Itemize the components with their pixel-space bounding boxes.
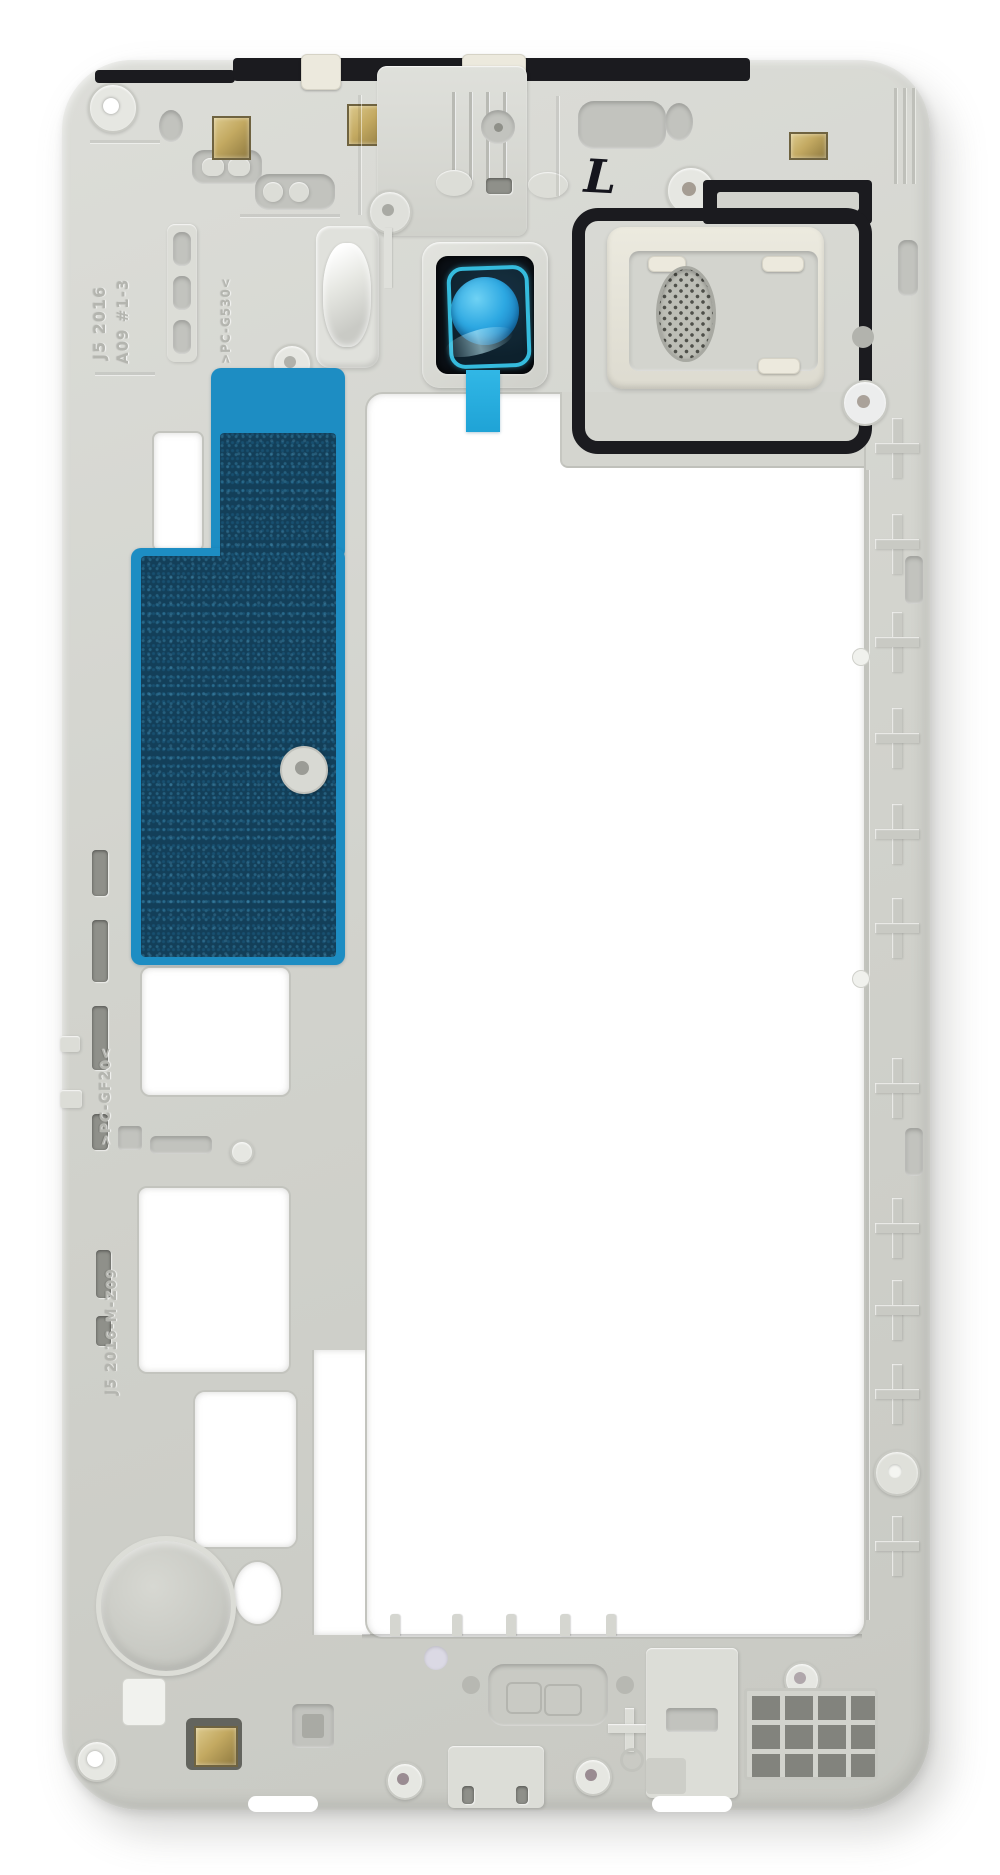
interior-opening [365,392,866,1639]
rail-slot-2 [905,1128,923,1176]
gold-contact-3 [789,132,828,160]
rail-dot-2 [852,970,870,988]
bottom-dot-b [616,1676,634,1694]
slot-recess-pill-1 [202,158,224,176]
handwritten-mark: L [582,143,636,216]
bottom-screw-1-dot [397,1773,409,1785]
vibration-dome [96,1536,236,1676]
rail-slot-top [898,240,918,296]
gasket-strip-left [95,70,235,83]
rail-dot-1 [852,648,870,666]
midbar-square [118,1126,142,1150]
bottom-dark-square-inner [302,1714,324,1738]
rail-cross-4 [875,708,919,768]
left-rail-slot-2 [92,920,108,982]
bottom-screw-3-dot [794,1672,806,1684]
side-slot-opening [152,431,204,552]
rail-rib-2 [903,88,906,184]
bottom-center-slot-2 [516,1786,528,1804]
pill-row-dot-1 [263,182,283,202]
rail-inner-groove [866,470,869,1620]
bottom-center-slot-1 [462,1786,474,1804]
bottom-tab-3 [506,1614,516,1636]
top-screw-dot [682,182,696,196]
rail-cross-8 [875,1198,919,1258]
bottom-panel-square-2 [544,1684,582,1716]
rail-cross-1 [875,418,919,478]
adhesive-screw-dot [295,761,309,775]
top-oval-hole [665,103,693,141]
pill-row-dot-2 [289,182,309,202]
marking-material-left: >PC-GF20< [98,982,120,1146]
marking-material-top: >PC-G530< [219,248,241,364]
bottom-edge-notch-2 [652,1796,732,1812]
sim-rib-2 [469,92,472,180]
rail-cross-3 [875,612,919,672]
bottom-screw-2-dot [585,1769,597,1781]
midbar-ring [230,1140,254,1164]
vent-grid [744,1688,878,1780]
speaker-screw-dot [857,395,870,408]
sim-foot-1 [436,170,472,196]
bottom-tab-4 [560,1614,570,1636]
sim-rib-1 [452,92,455,180]
speaker-mesh [656,266,716,362]
adhesive-top-fill [220,433,336,562]
left-rail-tab-1 [60,1036,80,1052]
bottom-ring-small [620,1748,644,1772]
bottom-tab-1 [390,1614,400,1636]
sim-hole-dot [494,123,503,132]
rail-slot-1 [905,556,923,604]
oval-recess-a [159,110,183,142]
slot-recess-pill-2 [228,158,250,176]
molded-groove-4 [556,96,559,196]
molded-groove-2 [240,214,340,217]
bottom-gold-contact [194,1726,238,1767]
marking-model-line2: A09 #1-3 [114,234,138,364]
rail-cross-10 [875,1364,919,1424]
left-rail-tab-2 [60,1090,82,1108]
speaker-boss-small [852,326,874,348]
top-cutout [578,101,666,149]
camera-adhesive-strip [466,370,500,432]
bottom-dot-a [462,1676,480,1694]
bottom-tab-5 [606,1614,616,1636]
bottom-tab-2 [452,1614,462,1636]
right-block-step [646,1758,686,1794]
speaker-tab-3 [758,358,800,374]
marking-mold-code: J5 2016-M-Z09 [104,1190,130,1395]
interior-opening-extension [312,1350,370,1635]
gasket-clip-1 [301,54,341,90]
slot-column-slot-2 [173,276,191,310]
camera-screw-dot [382,204,394,216]
bottom-oval-opening [232,1560,283,1626]
midbar-bar [150,1136,212,1154]
rail-cross-11 [875,1516,919,1576]
gold-contact-1 [212,116,251,160]
bottom-edge-notch-1 [248,1796,318,1812]
bottom-white-square [122,1678,166,1726]
marking-model-line1: J5 2016 [90,236,114,360]
slot-column-slot-1 [173,232,191,266]
bottom-panel-square-1 [506,1682,542,1714]
left-column-opening-3 [193,1390,298,1549]
rail-cross-5 [875,804,919,864]
rail-cross-9 [875,1280,919,1340]
slot-column-slot-3 [173,320,191,354]
molded-groove-5 [95,372,155,375]
rail-rib-3 [912,88,915,184]
flash-diffuser [323,243,371,347]
rail-screw-center [888,1464,902,1478]
camera-screw-stem [384,228,392,288]
sim-dark-slot [486,178,512,194]
molded-groove-1 [90,140,160,143]
left-column-opening-1 [140,966,291,1097]
left-column-opening-2 [137,1186,291,1374]
sim-foot-2 [528,172,568,198]
left-screw-dot [284,356,296,368]
left-rail-slot-1 [92,850,108,896]
right-block-channel [666,1708,718,1732]
rail-cross-7 [875,1058,919,1118]
speaker-tab-2 [762,256,804,272]
rail-cross-6 [875,898,919,958]
molded-groove-3 [358,95,361,215]
bottom-lavender-dot [424,1646,448,1670]
corner-screw-hole [103,98,119,114]
rail-rib-1 [894,88,897,184]
bottom-corner-screw-hole [87,1751,103,1767]
product-photo: J5 2016 A09 #1-3 >PC-G530< L [0,0,1000,1875]
